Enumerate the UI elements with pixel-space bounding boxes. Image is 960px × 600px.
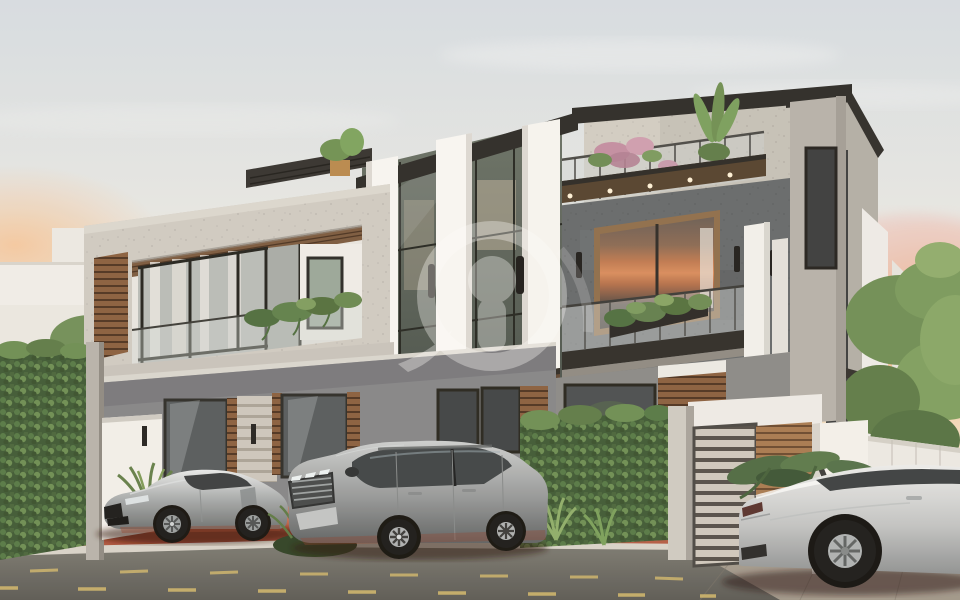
architectural-render: V1 bbox=[0, 0, 960, 600]
warm-grade-overlay bbox=[0, 0, 960, 600]
scene-canvas: V1 bbox=[0, 0, 960, 600]
